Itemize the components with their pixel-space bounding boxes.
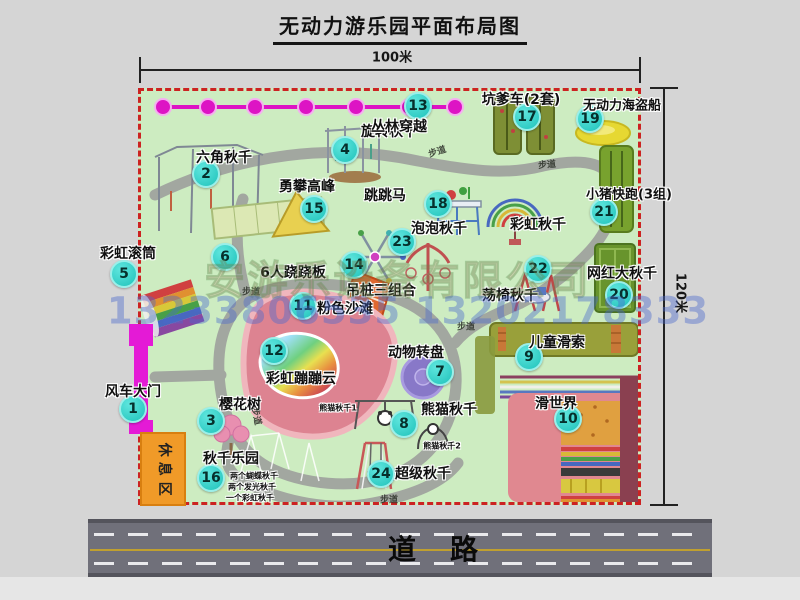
rest-area-box: 休息区	[140, 432, 186, 506]
climbing-peak-icon	[211, 189, 329, 243]
rainbow-swing-icon	[488, 200, 542, 245]
park-plan-page: 无动力游乐园平面布局图 100米 120米	[0, 0, 800, 600]
kengdie-cart-pads-icon	[494, 97, 554, 154]
road-label: 道路	[354, 528, 512, 568]
rest-area-char: 息	[154, 462, 172, 476]
below-road-strip	[0, 577, 800, 600]
width-dimension-label: 100米	[372, 47, 412, 66]
piggy-run-pad-icon	[600, 146, 633, 232]
animal-turntable-icon	[402, 356, 444, 398]
jungle-crossing-zipline-icon	[155, 99, 463, 115]
road: 道路	[88, 519, 712, 577]
rainbow-cloud-icon	[260, 333, 338, 397]
page-title: 无动力游乐园平面布局图	[273, 10, 527, 45]
attraction-badge-5: 5	[110, 260, 138, 288]
pirate-ship-icon	[576, 121, 630, 145]
rest-area-char: 区	[154, 482, 172, 496]
slide-world-icon	[508, 376, 638, 502]
watermark-phones: 13233806535 13202178333	[107, 290, 709, 333]
windmill-gate-bar	[134, 346, 148, 422]
jumping-horse-icon	[435, 187, 481, 235]
rest-area-char: 休	[154, 443, 172, 457]
